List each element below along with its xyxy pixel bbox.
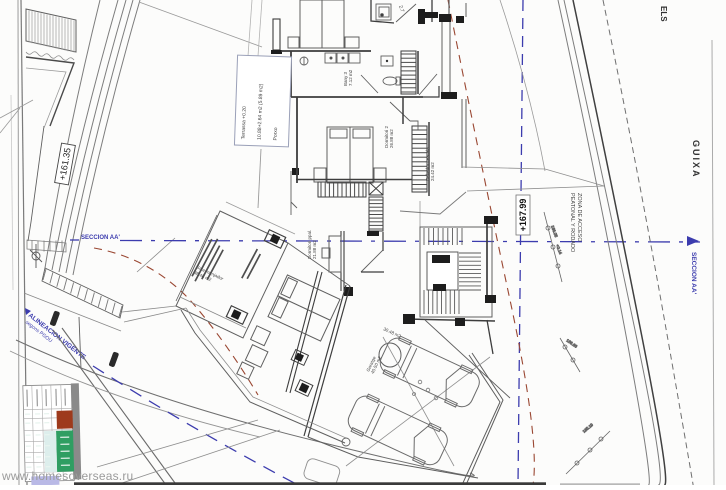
svg-text:SECCION AA': SECCION AA' <box>690 252 697 295</box>
svg-text:7.12 m2: 7.12 m2 <box>348 69 353 86</box>
svg-text:Terrassa +0.20: Terrassa +0.20 <box>241 106 248 140</box>
svg-text:ZONA DE ACCESO: ZONA DE ACCESO <box>576 193 582 242</box>
svg-text:21.88 m2: 21.88 m2 <box>312 240 317 259</box>
svg-text:24.42 m2: 24.42 m2 <box>430 162 435 181</box>
svg-text:Porxo: Porxo <box>273 127 279 140</box>
svg-text:www.homesoverseas.ru: www.homesoverseas.ru <box>1 469 133 483</box>
svg-text:SECCION AA': SECCION AA' <box>81 235 120 241</box>
svg-text:PEATONAL Y RODADO: PEATONAL Y RODADO <box>569 193 575 253</box>
svg-text:26.88 m2: 26.88 m2 <box>389 129 394 148</box>
svg-text:GUIXA: GUIXA <box>691 140 701 179</box>
svg-text:+167.99: +167.99 <box>518 199 528 232</box>
svg-text:ELS: ELS <box>659 6 668 22</box>
